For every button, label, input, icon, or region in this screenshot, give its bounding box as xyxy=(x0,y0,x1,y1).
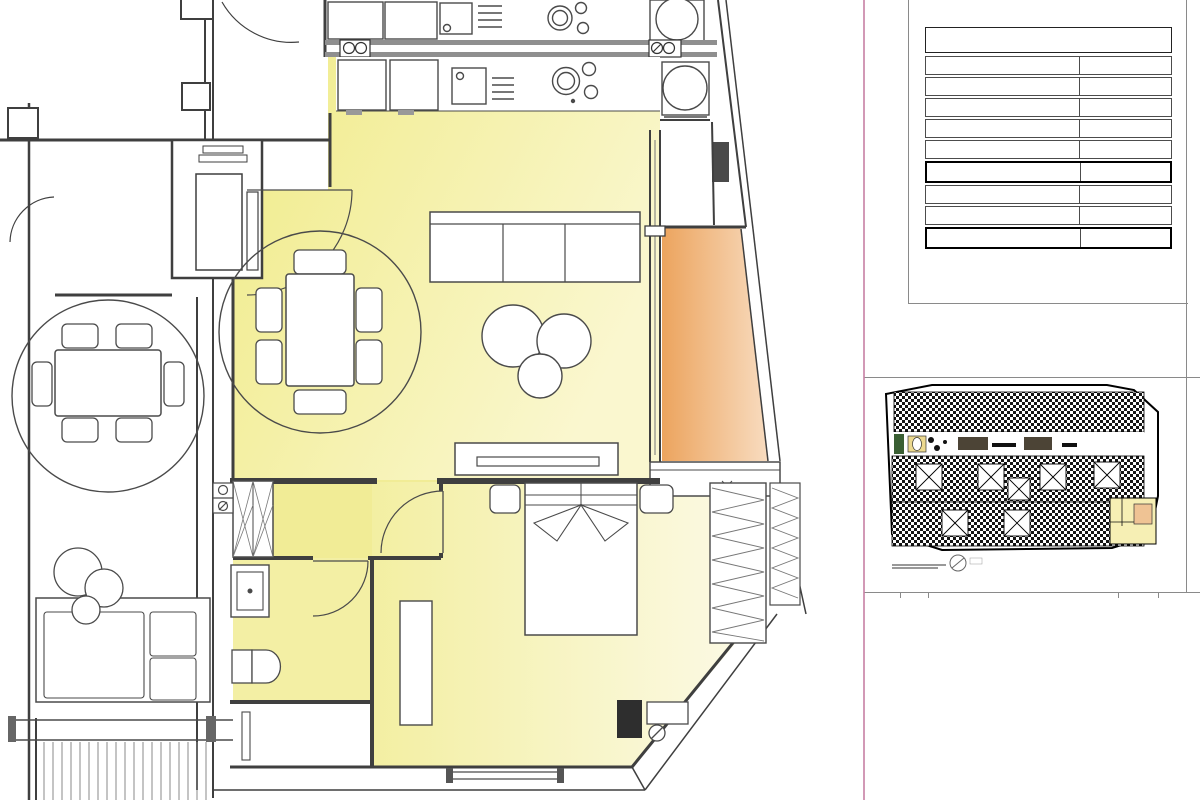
apartment-info-table xyxy=(925,27,1172,251)
table-row-total-interior xyxy=(925,161,1172,183)
keyplan-sheet-bottom xyxy=(864,592,1200,593)
boiler-washer xyxy=(662,62,709,120)
tick-mark xyxy=(928,593,929,598)
structural-column xyxy=(617,700,642,738)
table-row xyxy=(925,77,1172,96)
table-row xyxy=(925,119,1172,138)
neighbor-terrace xyxy=(8,716,233,800)
floor-plan-drawing xyxy=(0,0,866,800)
tick-mark xyxy=(900,593,901,598)
sofa xyxy=(430,212,640,282)
neighbor-sofa xyxy=(36,548,210,702)
key-plan xyxy=(872,378,1172,592)
keyplan-caption xyxy=(892,555,982,571)
neighbor-dining xyxy=(12,300,204,492)
tick-mark xyxy=(1118,593,1119,598)
table-row-blank xyxy=(925,206,1172,225)
sheet-divider-line xyxy=(863,0,865,800)
grid-ref-boxes xyxy=(8,0,213,138)
table-row xyxy=(925,185,1172,204)
hall-closet xyxy=(233,481,273,557)
upper-kitchen xyxy=(328,0,704,42)
terrace-floor xyxy=(662,228,768,461)
keyplan-highlight-unit xyxy=(1110,498,1156,544)
table-row xyxy=(925,98,1172,117)
tv-stand xyxy=(455,443,618,475)
table-title xyxy=(925,27,1172,53)
table-row-total xyxy=(925,227,1172,249)
elevator xyxy=(172,140,262,278)
bedroom-window xyxy=(446,768,564,783)
utility-shaft xyxy=(213,483,233,513)
floorplan-page xyxy=(0,0,1200,800)
kitchen xyxy=(336,57,709,120)
tick-mark xyxy=(1158,593,1159,598)
ac-unit xyxy=(647,702,688,741)
table-row-blank xyxy=(925,56,1172,75)
table-row xyxy=(925,140,1172,159)
party-wall xyxy=(325,40,717,57)
